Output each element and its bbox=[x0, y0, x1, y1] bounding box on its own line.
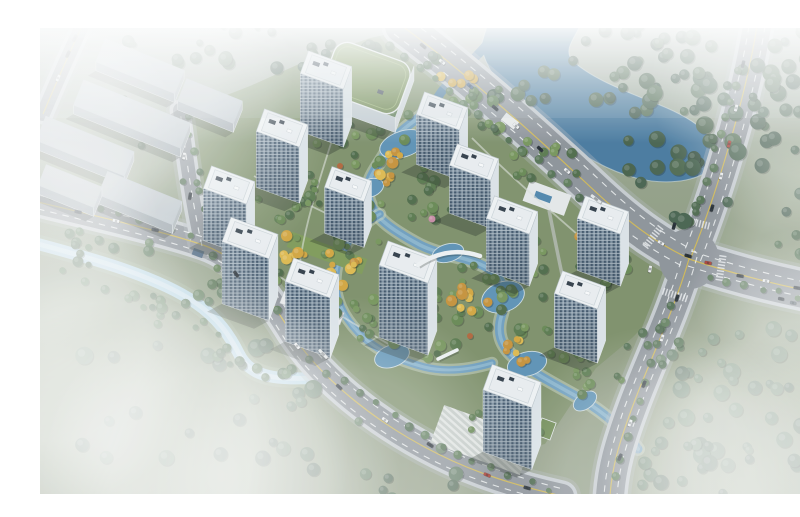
aerial-site-plan bbox=[40, 16, 800, 501]
aerial-rendering-figure: Aerial bird's-eye rendering of a riversi… bbox=[40, 16, 800, 501]
rendering-canvas bbox=[40, 16, 800, 501]
white-frame-top bbox=[40, 16, 800, 28]
global-tint bbox=[40, 28, 800, 494]
rendering-content bbox=[40, 16, 800, 501]
white-frame-bottom bbox=[40, 494, 800, 501]
